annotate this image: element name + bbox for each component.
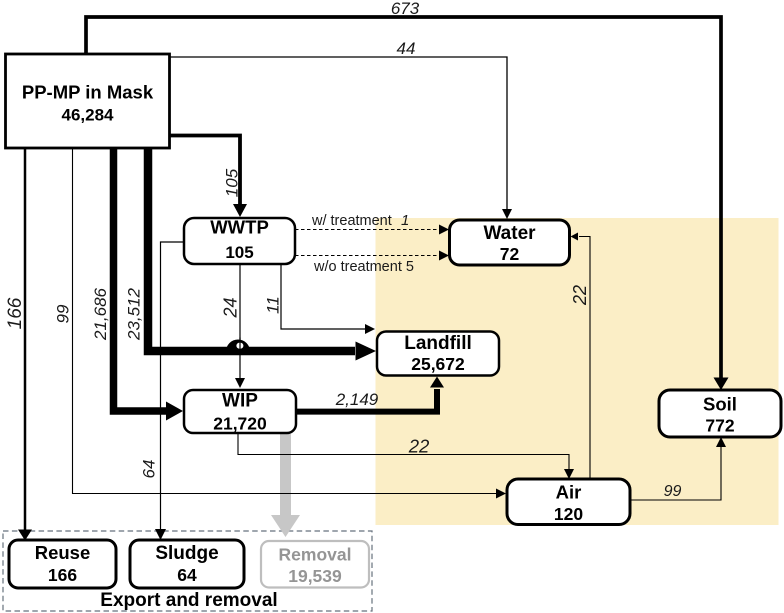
svg-text:166: 166 bbox=[5, 297, 26, 329]
svg-text:105: 105 bbox=[225, 243, 253, 262]
svg-text:Soil: Soil bbox=[703, 394, 737, 415]
svg-text:99: 99 bbox=[54, 304, 73, 323]
svg-text:Air: Air bbox=[556, 482, 582, 503]
svg-text:21,720: 21,720 bbox=[213, 414, 267, 434]
svg-text:23,512: 23,512 bbox=[125, 287, 144, 341]
svg-text:46,284: 46,284 bbox=[62, 106, 115, 125]
svg-text:105: 105 bbox=[223, 168, 242, 197]
svg-text:1: 1 bbox=[401, 212, 409, 229]
svg-text:22: 22 bbox=[570, 285, 590, 306]
svg-text:166: 166 bbox=[48, 565, 77, 585]
svg-text:64: 64 bbox=[140, 460, 159, 479]
svg-text:Water: Water bbox=[483, 223, 536, 244]
svg-text:Landfill: Landfill bbox=[404, 333, 472, 354]
svg-text:64: 64 bbox=[177, 565, 197, 585]
svg-text:Export and removal: Export and removal bbox=[100, 590, 277, 611]
svg-text:22: 22 bbox=[408, 436, 430, 457]
svg-text:Reuse: Reuse bbox=[35, 542, 91, 563]
svg-text:120: 120 bbox=[554, 504, 583, 524]
svg-text:w/o treatment 5: w/o treatment 5 bbox=[313, 259, 414, 275]
svg-text:Sludge: Sludge bbox=[155, 543, 218, 564]
svg-text:24: 24 bbox=[221, 297, 241, 318]
svg-text:PP-MP in Mask: PP-MP in Mask bbox=[22, 82, 154, 103]
svg-text:25,672: 25,672 bbox=[411, 354, 465, 374]
svg-text:44: 44 bbox=[397, 39, 416, 58]
svg-text:11: 11 bbox=[264, 296, 283, 314]
svg-text:19,539: 19,539 bbox=[288, 566, 342, 586]
svg-text:WWTP: WWTP bbox=[210, 217, 269, 238]
svg-text:w/ treatment: w/ treatment bbox=[311, 213, 392, 229]
svg-text:673: 673 bbox=[391, 0, 420, 18]
svg-text:21,686: 21,686 bbox=[91, 287, 110, 341]
svg-text:2,149: 2,149 bbox=[335, 390, 379, 409]
svg-text:99: 99 bbox=[664, 483, 682, 500]
svg-text:Removal: Removal bbox=[279, 545, 352, 565]
svg-text:772: 772 bbox=[705, 416, 734, 436]
svg-text:72: 72 bbox=[500, 244, 520, 264]
svg-text:WIP: WIP bbox=[222, 391, 258, 412]
